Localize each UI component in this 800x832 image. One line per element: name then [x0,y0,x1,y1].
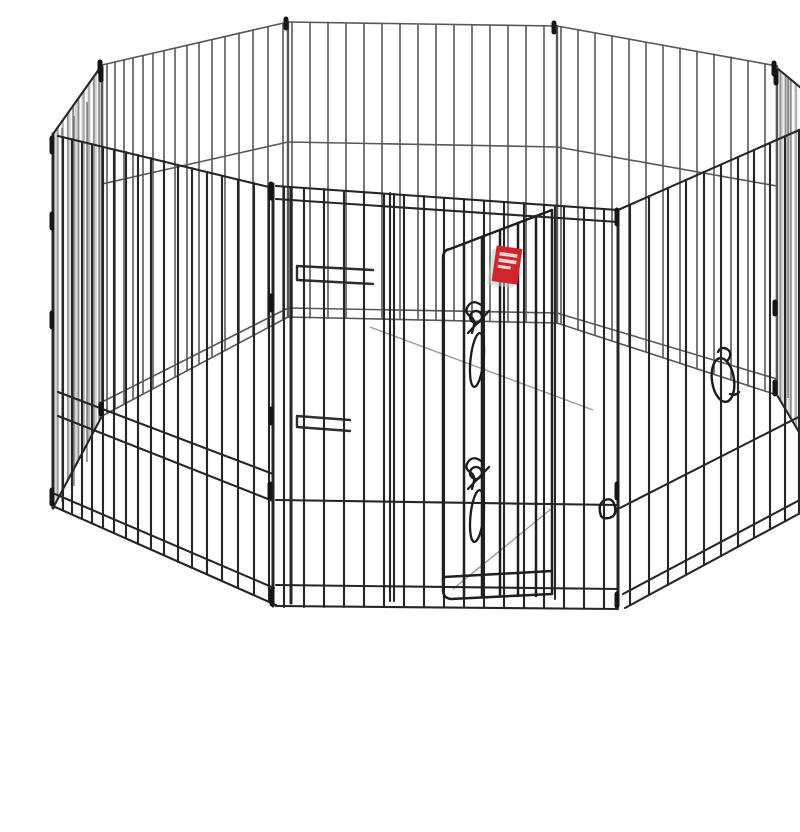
playpen-illustration: 8-panel wire exercise pen with door [40,16,800,816]
product-photo: Octagonal 8-panel black wire pet exercis… [40,16,800,816]
brand-tag [487,245,522,289]
